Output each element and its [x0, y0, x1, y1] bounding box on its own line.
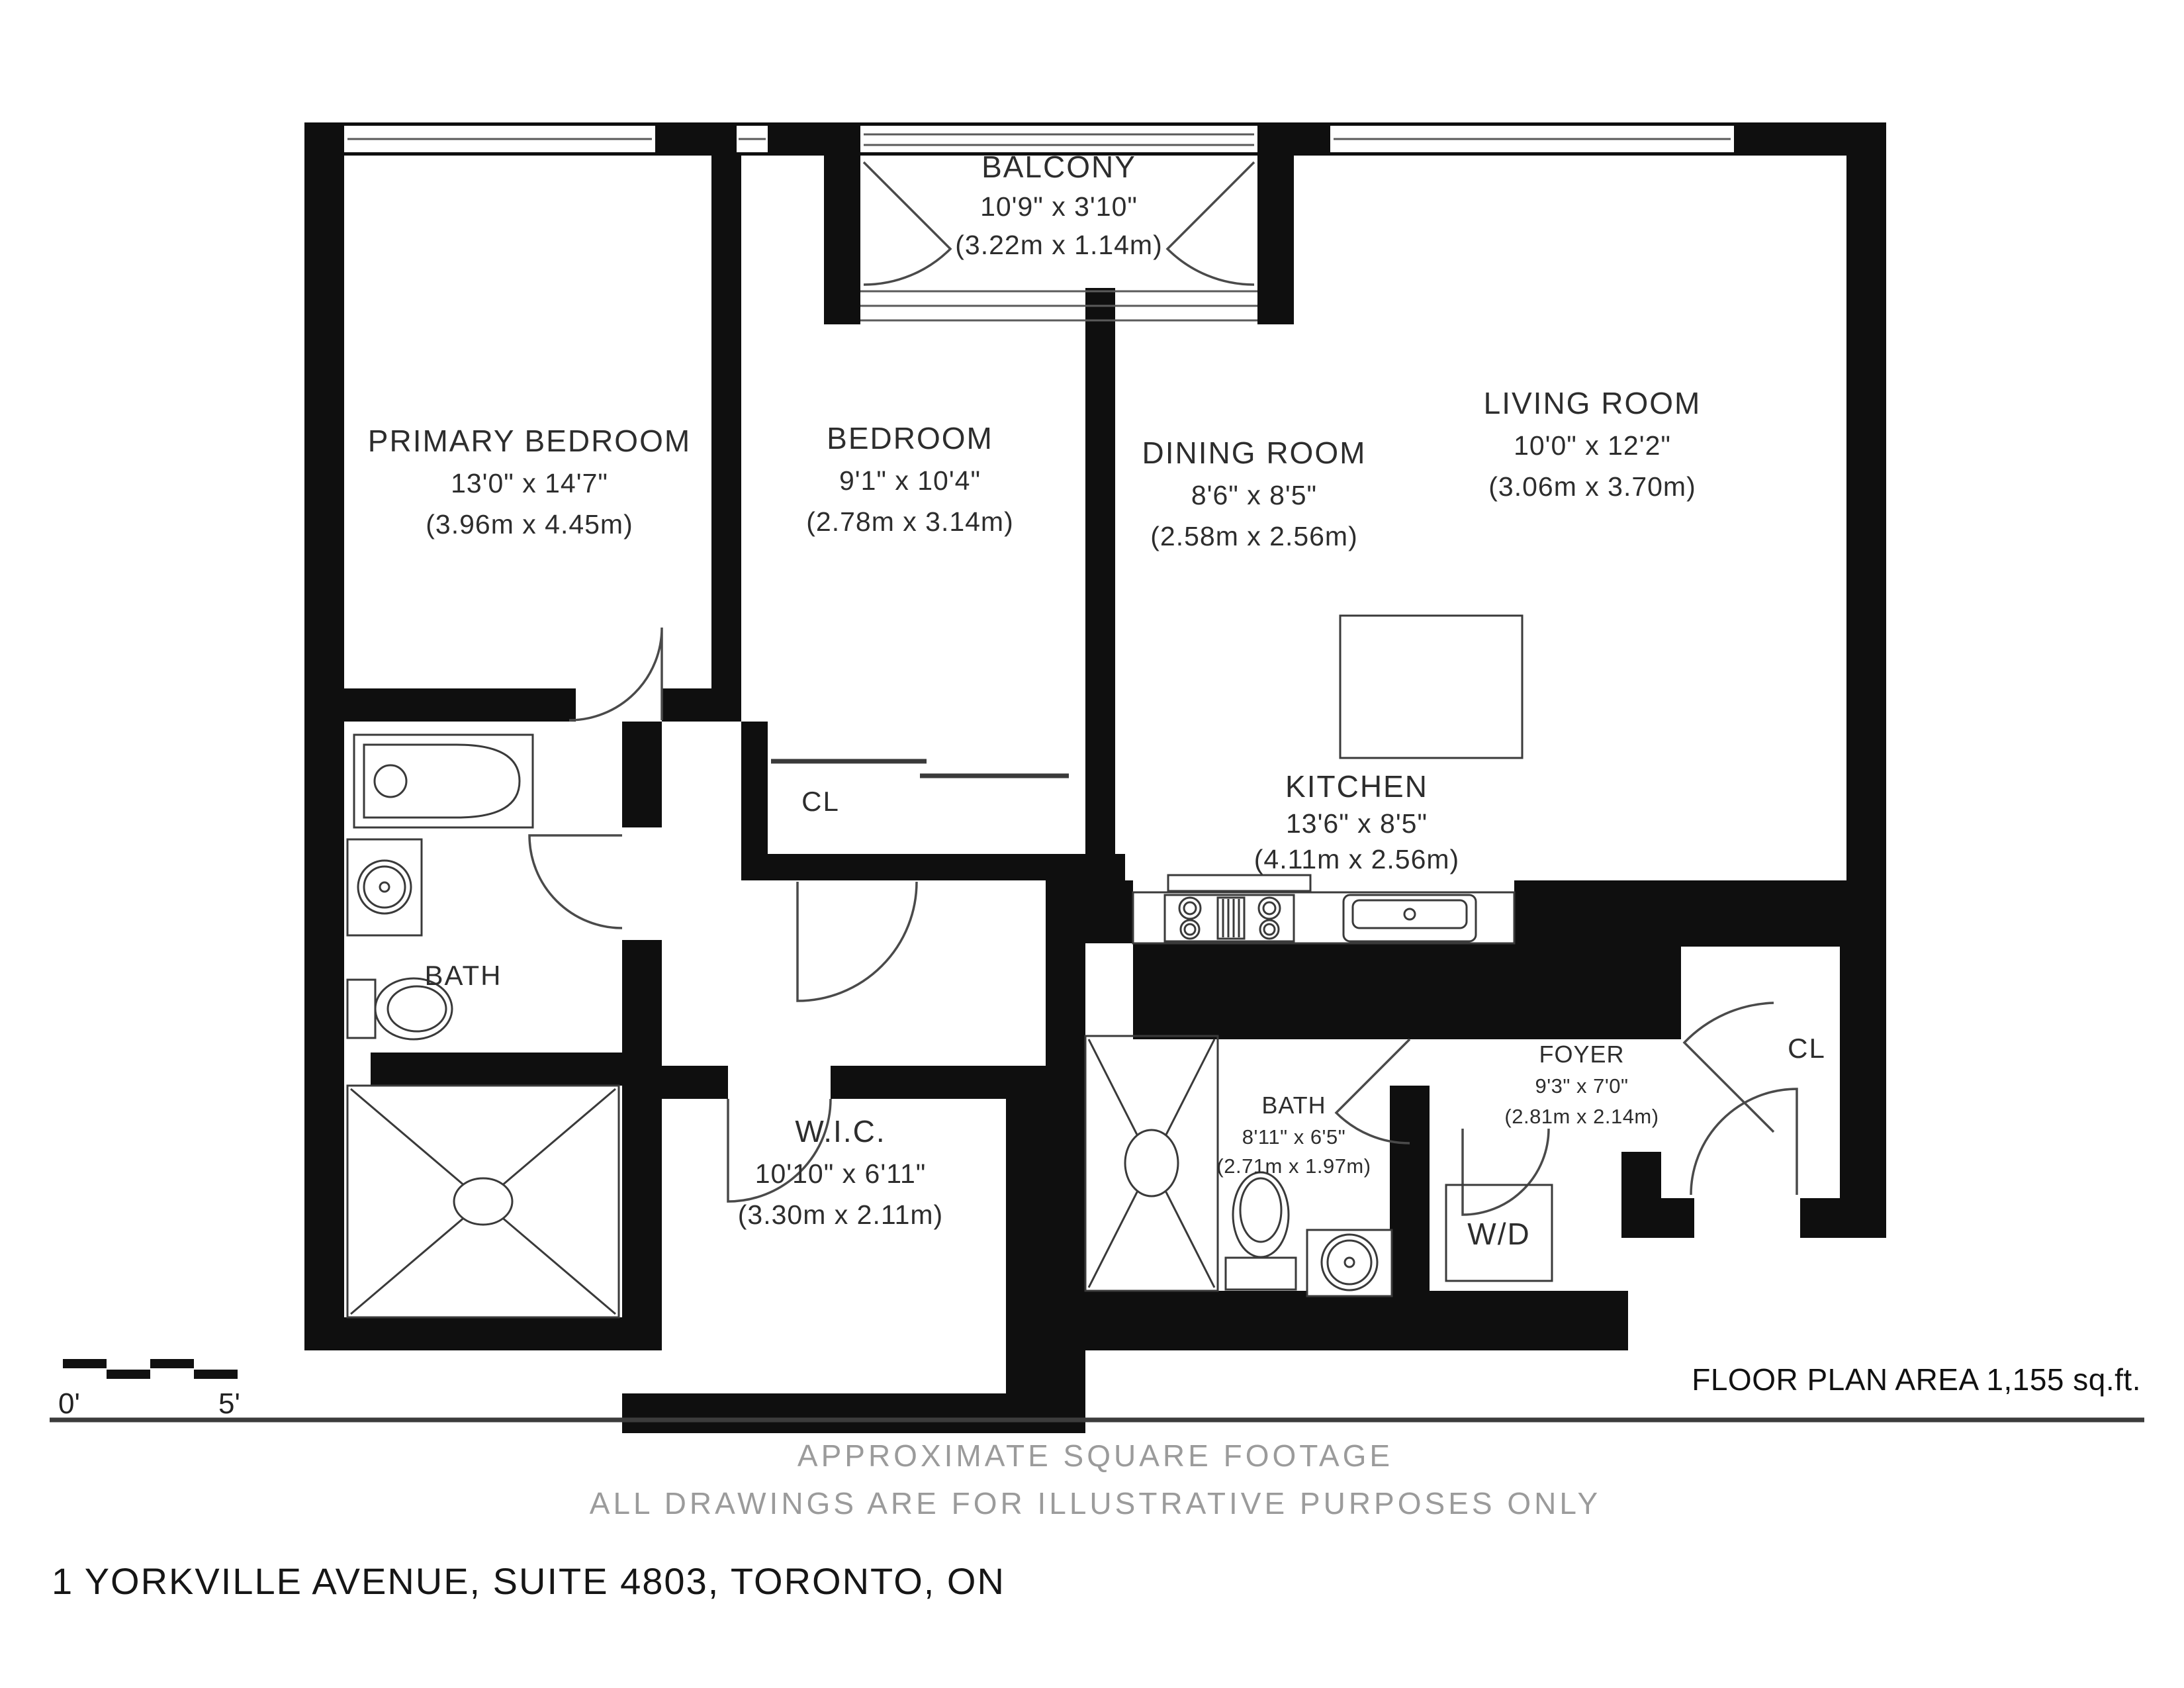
room-dims-living-room: 10'0" x 12'2": [1514, 430, 1671, 461]
door-laundry: [1463, 1129, 1549, 1215]
room-label-balcony: BALCONY: [981, 150, 1136, 184]
room-label-kitchen: KITCHEN: [1285, 769, 1428, 804]
room-label-foyer: FOYER: [1539, 1041, 1624, 1068]
room-metric-foyer: (2.81m x 2.14m): [1504, 1105, 1659, 1128]
room-dims-wic: 10'10" x 6'11": [755, 1158, 927, 1189]
scale-bar: 0' 5': [58, 1364, 240, 1420]
room-label-dining-room: DINING ROOM: [1142, 436, 1367, 470]
room-label-primary-bedroom: PRIMARY BEDROOM: [368, 424, 691, 458]
footnote-square-footage: APPROXIMATE SQUARE FOOTAGE: [797, 1438, 1393, 1473]
door-hallway: [797, 882, 917, 1001]
bathtub: [354, 735, 533, 827]
door-balcony-right: [1167, 162, 1254, 285]
scale-bar-segments: [63, 1364, 238, 1374]
floor-plan-drawing: PRIMARY BEDROOM 13'0" x 14'7" (3.96m x 4…: [0, 0, 2184, 1688]
room-metric-bedroom: (2.78m x 3.14m): [806, 506, 1014, 537]
room-metric-living-room: (3.06m x 3.70m): [1488, 471, 1696, 502]
room-label-living-room: LIVING ROOM: [1484, 386, 1702, 420]
sink-primary-bath: [347, 839, 422, 935]
stove: [1165, 895, 1294, 941]
room-metric-wic: (3.30m x 2.11m): [738, 1199, 943, 1230]
shower-second-bath: [1085, 1036, 1218, 1291]
shower-primary-bath: [347, 1086, 619, 1317]
door-primary-bedroom: [569, 628, 662, 720]
room-dims-bedroom: 9'1" x 10'4": [839, 465, 981, 496]
room-dims-primary-bedroom: 13'0" x 14'7": [451, 468, 608, 498]
toilet-second-bath: [1226, 1172, 1296, 1289]
floor-plan-area-label: FLOOR PLAN AREA 1,155 sq.ft.: [1692, 1362, 2141, 1397]
room-metric-dining-room: (2.58m x 2.56m): [1150, 521, 1358, 551]
room-label-wic: W.I.C.: [795, 1114, 886, 1149]
label-closet-bedroom: CL: [801, 786, 840, 817]
window-balcony-band: [860, 291, 1257, 320]
label-laundry: W/D: [1467, 1217, 1530, 1251]
scale-start-label: 0': [58, 1387, 80, 1420]
door-bath-primary: [529, 835, 622, 928]
room-dims-bath-second: 8'11" x 6'5": [1242, 1125, 1345, 1149]
label-closet-foyer: CL: [1788, 1033, 1826, 1064]
room-metric-primary-bedroom: (3.96m x 4.45m): [426, 509, 633, 539]
room-dims-foyer: 9'3" x 7'0": [1535, 1074, 1628, 1098]
room-label-bath-second: BATH: [1261, 1092, 1326, 1119]
kitchen-sink: [1343, 895, 1476, 941]
room-metric-balcony: (3.22m x 1.14m): [955, 230, 1163, 260]
room-metric-kitchen: (4.11m x 2.56m): [1254, 844, 1459, 874]
room-label-bath-primary: BATH: [425, 960, 502, 991]
sliding-door-closet-bedroom: [771, 761, 1069, 776]
room-dims-dining-room: 8'6" x 8'5": [1191, 480, 1317, 510]
door-balcony-left: [864, 162, 950, 285]
door-entry: [1691, 1089, 1797, 1195]
room-metric-bath-second: (2.71m x 1.97m): [1216, 1154, 1371, 1178]
room-label-bedroom: BEDROOM: [827, 421, 993, 455]
walls: [304, 122, 1886, 1433]
scale-end-label: 5': [218, 1387, 240, 1420]
kitchen-island: [1340, 616, 1522, 758]
room-dims-balcony: 10'9" x 3'10": [980, 191, 1138, 222]
floor-plan-page: PRIMARY BEDROOM 13'0" x 14'7" (3.96m x 4…: [0, 0, 2184, 1688]
address-line: 1 YORKVILLE AVENUE, SUITE 4803, TORONTO,…: [52, 1560, 1005, 1602]
room-dims-kitchen: 13'6" x 8'5": [1286, 808, 1428, 839]
footnote-illustrative: ALL DRAWINGS ARE FOR ILLUSTRATIVE PURPOS…: [590, 1486, 1601, 1521]
sink-second-bath: [1307, 1230, 1392, 1296]
